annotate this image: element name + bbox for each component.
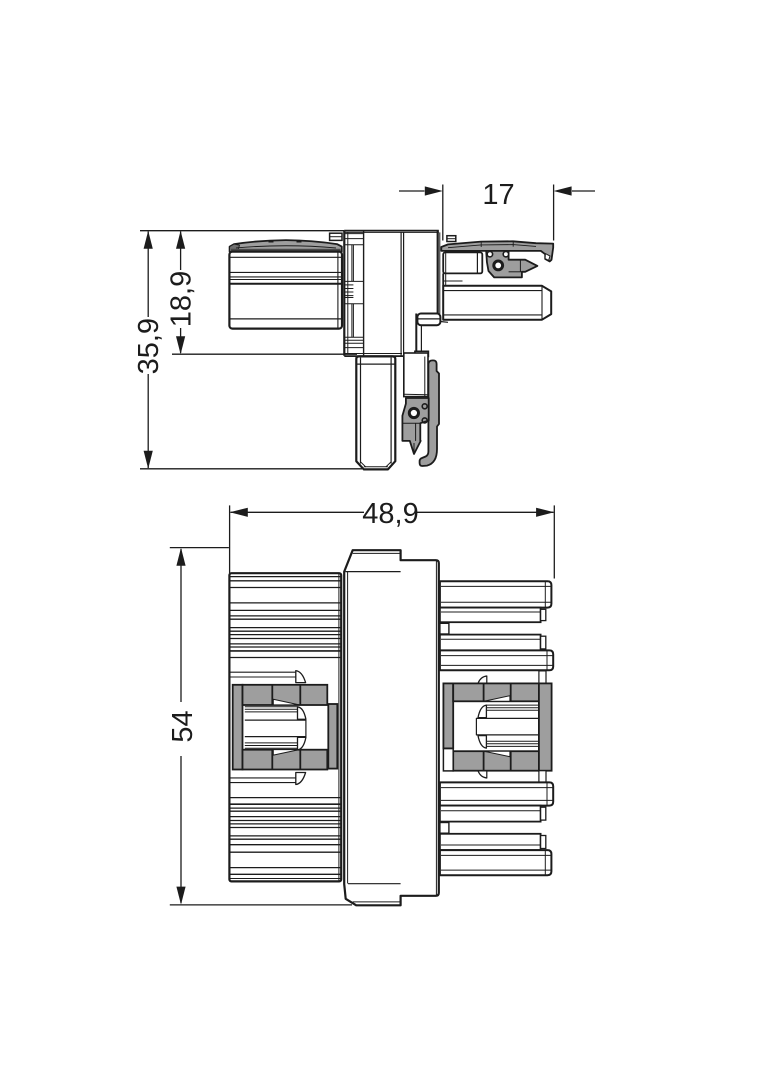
svg-text:48,9: 48,9 — [362, 498, 418, 530]
svg-text:17: 17 — [482, 179, 514, 211]
svg-text:54: 54 — [167, 710, 199, 742]
svg-text:35,9: 35,9 — [133, 318, 165, 374]
svg-text:18,9: 18,9 — [165, 271, 197, 327]
